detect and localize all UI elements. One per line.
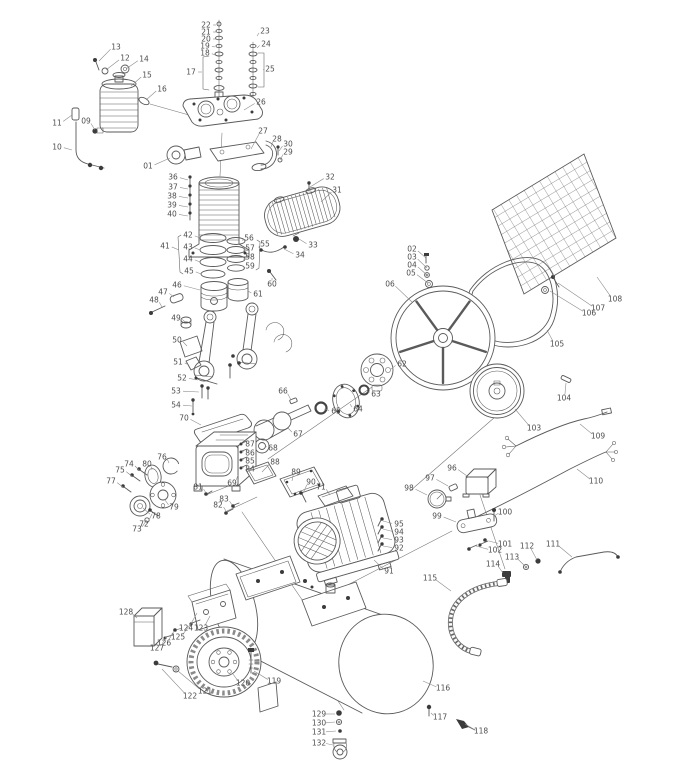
part-number-62: 62 — [397, 360, 407, 369]
part-number-93: 93 — [394, 536, 404, 545]
part-number-11: 11 — [52, 119, 62, 128]
part-number-64: 64 — [353, 405, 363, 414]
leader-line-64 — [350, 404, 352, 407]
leader-line-10 — [64, 148, 72, 150]
cylinder-head — [183, 95, 263, 126]
leader-line-41 — [172, 247, 179, 250]
drain-plug — [427, 705, 431, 716]
leader-line-98 — [416, 489, 427, 495]
part-number-06: 06 — [385, 280, 395, 289]
part-number-119: 119 — [267, 677, 282, 686]
part-number-25: 25 — [265, 65, 275, 74]
part-number-56: 56 — [244, 234, 254, 243]
part-number-91: 91 — [384, 567, 394, 576]
part-number-105: 105 — [550, 340, 565, 349]
leader-line-106 — [550, 291, 583, 311]
part-number-43: 43 — [183, 243, 193, 252]
valve-stack-right — [249, 42, 257, 100]
part-number-118: 118 — [474, 727, 489, 736]
leader-line-82 — [224, 507, 226, 511]
part-number-99: 99 — [432, 512, 442, 521]
small-end-bushing — [181, 317, 191, 328]
part-number-59: 59 — [245, 262, 255, 271]
part-number-39: 39 — [167, 201, 177, 210]
leader-line-81 — [204, 489, 206, 493]
part-number-51: 51 — [173, 358, 183, 367]
guard-washer — [542, 287, 549, 294]
part-number-74: 74 — [124, 460, 134, 469]
part-number-17: 17 — [186, 68, 196, 77]
filter-fitting — [138, 96, 151, 106]
leader-line-131 — [326, 731, 336, 732]
part-number-50: 50 — [172, 336, 182, 345]
leader-line-53 — [183, 391, 199, 392]
oil-seal-65 — [316, 403, 327, 414]
switch-fitting — [449, 483, 458, 491]
part-number-10: 10 — [52, 143, 62, 152]
part-number-12: 12 — [120, 54, 130, 63]
part-number-90: 90 — [306, 478, 316, 487]
leader-line-97 — [436, 479, 448, 486]
leader-line-24 — [257, 45, 260, 48]
part-number-73: 73 — [132, 525, 142, 534]
leader-line-40 — [179, 214, 188, 216]
part-number-113: 113 — [505, 553, 520, 562]
leader-line-09 — [91, 123, 95, 130]
part-number-128: 128 — [119, 608, 134, 617]
part-number-44: 44 — [183, 255, 193, 264]
part-number-125: 125 — [171, 633, 186, 642]
part-number-46: 46 — [172, 281, 182, 290]
leader-line-122 — [162, 669, 185, 694]
part-number-85: 85 — [245, 457, 255, 466]
leader-line-49 — [182, 319, 185, 322]
leader-line-33 — [299, 239, 307, 244]
part-number-40: 40 — [167, 210, 177, 219]
part-number-47: 47 — [158, 288, 168, 297]
part-number-14: 14 — [139, 55, 149, 64]
part-number-30: 30 — [283, 140, 293, 149]
cover-screw-90 — [299, 491, 306, 502]
part-number-16: 16 — [157, 85, 167, 94]
air-filter — [100, 73, 138, 133]
part-number-55: 55 — [260, 240, 270, 249]
leader-line-102 — [476, 546, 488, 549]
seal-ring-63 — [360, 386, 369, 395]
part-number-103: 103 — [527, 424, 542, 433]
leader-line-44 — [195, 260, 200, 262]
piston-large — [201, 282, 227, 311]
part-number-70: 70 — [179, 414, 189, 423]
part-number-108: 108 — [608, 295, 623, 304]
belt-guard-mesh — [492, 154, 616, 294]
exploded-parts-diagram: 0102030405060910111213141516171819202122… — [0, 0, 686, 768]
part-number-77: 77 — [106, 477, 116, 486]
part-number-41: 41 — [160, 242, 170, 251]
leader-line-11 — [63, 115, 72, 121]
leader-line-130 — [326, 722, 335, 723]
connecting-rod-left — [194, 311, 216, 381]
leader-line-132 — [326, 743, 333, 745]
part-number-97: 97 — [425, 474, 435, 483]
leader-line-107 — [558, 283, 592, 306]
part-number-80: 80 — [142, 460, 152, 469]
part-number-48: 48 — [149, 296, 159, 305]
leader-line-36 — [180, 178, 188, 180]
part-number-22: 22 — [201, 21, 211, 30]
part-number-65: 65 — [331, 407, 341, 416]
part-number-127: 127 — [150, 644, 165, 653]
part-number-34: 34 — [295, 251, 305, 260]
part-number-45: 45 — [184, 267, 194, 276]
part-number-89: 89 — [291, 468, 301, 477]
tank-leg — [258, 682, 278, 712]
part-number-122: 122 — [183, 692, 198, 701]
part-number-15: 15 — [142, 71, 152, 80]
part-number-37: 37 — [168, 183, 178, 192]
part-number-107: 107 — [591, 304, 606, 313]
part-number-69: 69 — [227, 479, 237, 488]
bracket-17 — [203, 56, 209, 90]
part-number-114: 114 — [486, 560, 501, 569]
leader-line-13 — [99, 49, 111, 61]
crank-bearing-arm — [167, 146, 201, 164]
leader-line-23 — [257, 33, 259, 36]
leader-line-18 — [212, 54, 215, 55]
leader-line-101 — [489, 541, 498, 543]
part-number-28: 28 — [272, 135, 282, 144]
part-number-71: 71 — [316, 483, 326, 492]
part-number-24: 24 — [261, 40, 271, 49]
part-number-84: 84 — [245, 465, 255, 474]
leader-line-45 — [196, 272, 201, 274]
part-number-120: 120 — [236, 679, 251, 688]
part-number-32: 32 — [325, 173, 335, 182]
part-number-78: 78 — [151, 512, 161, 521]
leader-line-111 — [559, 546, 572, 557]
part-number-123: 123 — [194, 624, 209, 633]
flywheel-bolt-set — [424, 253, 433, 288]
part-number-112: 112 — [520, 542, 535, 551]
part-number-81: 81 — [193, 483, 203, 492]
bearing-68 — [255, 439, 269, 453]
pressure-gauge — [428, 490, 451, 508]
part-number-76: 76 — [157, 453, 167, 462]
braided-hose — [450, 578, 507, 656]
part-number-60: 60 — [267, 280, 277, 289]
part-number-27: 27 — [258, 127, 268, 136]
part-number-132: 132 — [312, 739, 327, 748]
leader-line-16 — [146, 91, 156, 100]
leader-line-83 — [230, 501, 232, 505]
part-number-83: 83 — [219, 495, 229, 504]
cylinder-bolt-set — [188, 175, 191, 220]
part-number-01: 01 — [143, 162, 153, 171]
part-number-29: 29 — [283, 148, 293, 157]
part-number-110: 110 — [589, 477, 604, 486]
pipe-fitting-112 — [535, 558, 540, 563]
part-number-38: 38 — [167, 192, 177, 201]
part-number-79: 79 — [169, 503, 179, 512]
pressure-switch-group — [428, 469, 498, 551]
leader-line-39 — [179, 205, 188, 207]
crankshaft-key — [289, 398, 297, 404]
part-number-111: 111 — [546, 540, 561, 549]
part-number-116: 116 — [436, 684, 451, 693]
leader-line-76 — [167, 459, 169, 463]
part-number-124: 124 — [179, 624, 194, 633]
leader-line-66 — [288, 394, 291, 400]
caster-foot-set — [333, 710, 347, 759]
part-number-68: 68 — [268, 444, 278, 453]
part-number-102: 102 — [488, 546, 503, 555]
part-number-117: 117 — [433, 713, 448, 722]
part-number-129: 129 — [312, 710, 327, 719]
pin-bolt — [149, 306, 165, 315]
part-number-92: 92 — [394, 544, 404, 553]
part-number-95: 95 — [394, 520, 404, 529]
tank-saddle-front — [236, 556, 300, 600]
leader-line-19 — [212, 46, 215, 47]
tank-saddle-rear — [302, 582, 366, 626]
part-number-104: 104 — [557, 394, 572, 403]
leader-line-99 — [444, 517, 456, 522]
leader-line-37 — [180, 187, 188, 189]
part-number-100: 100 — [498, 508, 513, 517]
cylinder-block — [189, 177, 249, 257]
piston-pin — [169, 293, 184, 304]
part-number-96: 96 — [447, 464, 457, 473]
part-number-115: 115 — [423, 574, 438, 583]
leader-line-67 — [288, 428, 292, 432]
leader-line-12 — [106, 60, 119, 70]
part-number-09: 09 — [81, 117, 91, 126]
leader-line-06 — [395, 286, 412, 302]
leader-line-108 — [597, 277, 611, 296]
leader-line-04 — [418, 267, 427, 275]
part-number-05: 05 — [406, 269, 416, 278]
bracket-25 — [258, 53, 264, 87]
part-number-109: 109 — [591, 432, 606, 441]
part-number-57: 57 — [245, 244, 255, 253]
part-number-33: 33 — [308, 241, 318, 250]
pulley-key — [561, 375, 572, 383]
part-number-36: 36 — [168, 173, 178, 182]
leader-line-38 — [179, 196, 188, 198]
head-gasket — [210, 142, 264, 161]
part-number-53: 53 — [171, 387, 181, 396]
part-number-58: 58 — [245, 253, 255, 262]
part-number-94: 94 — [394, 528, 404, 537]
leader-line-46 — [184, 286, 200, 290]
part-number-26: 26 — [256, 98, 266, 107]
part-number-98: 98 — [404, 484, 414, 493]
part-number-49: 49 — [171, 314, 181, 323]
part-number-131: 131 — [312, 728, 327, 737]
part-number-130: 130 — [312, 719, 327, 728]
part-number-67: 67 — [293, 430, 303, 439]
part-number-121: 121 — [198, 687, 213, 696]
leader-line-34 — [284, 249, 293, 254]
leader-line-32 — [310, 179, 324, 187]
leader-line-115 — [436, 580, 451, 591]
axle-bolt — [154, 661, 179, 672]
leader-line-50 — [183, 342, 187, 346]
diagram-canvas: 0102030405060910111213141516171819202122… — [0, 0, 686, 768]
part-number-66: 66 — [278, 387, 288, 396]
leader-line-61 — [248, 291, 251, 293]
piston-small — [228, 279, 248, 302]
part-number-63: 63 — [371, 390, 381, 399]
part-number-75: 75 — [115, 466, 125, 475]
part-number-31: 31 — [332, 186, 342, 195]
part-number-88: 88 — [270, 458, 280, 467]
leader-line-70 — [190, 419, 201, 425]
small-pin-bolt — [267, 269, 276, 280]
part-number-42: 42 — [183, 231, 193, 240]
leader-line-54 — [183, 405, 192, 406]
part-number-23: 23 — [260, 27, 270, 36]
part-number-52: 52 — [177, 374, 187, 383]
connecting-rod-right — [228, 303, 292, 378]
part-number-87: 87 — [245, 440, 255, 449]
leader-line-48 — [159, 302, 162, 307]
outlet-pipe — [558, 552, 620, 574]
part-number-86: 86 — [245, 449, 255, 458]
leader-line-96 — [458, 470, 467, 476]
part-number-13: 13 — [111, 43, 121, 52]
part-number-54: 54 — [171, 401, 181, 410]
part-number-61: 61 — [253, 290, 263, 299]
leader-line-01 — [155, 158, 170, 165]
